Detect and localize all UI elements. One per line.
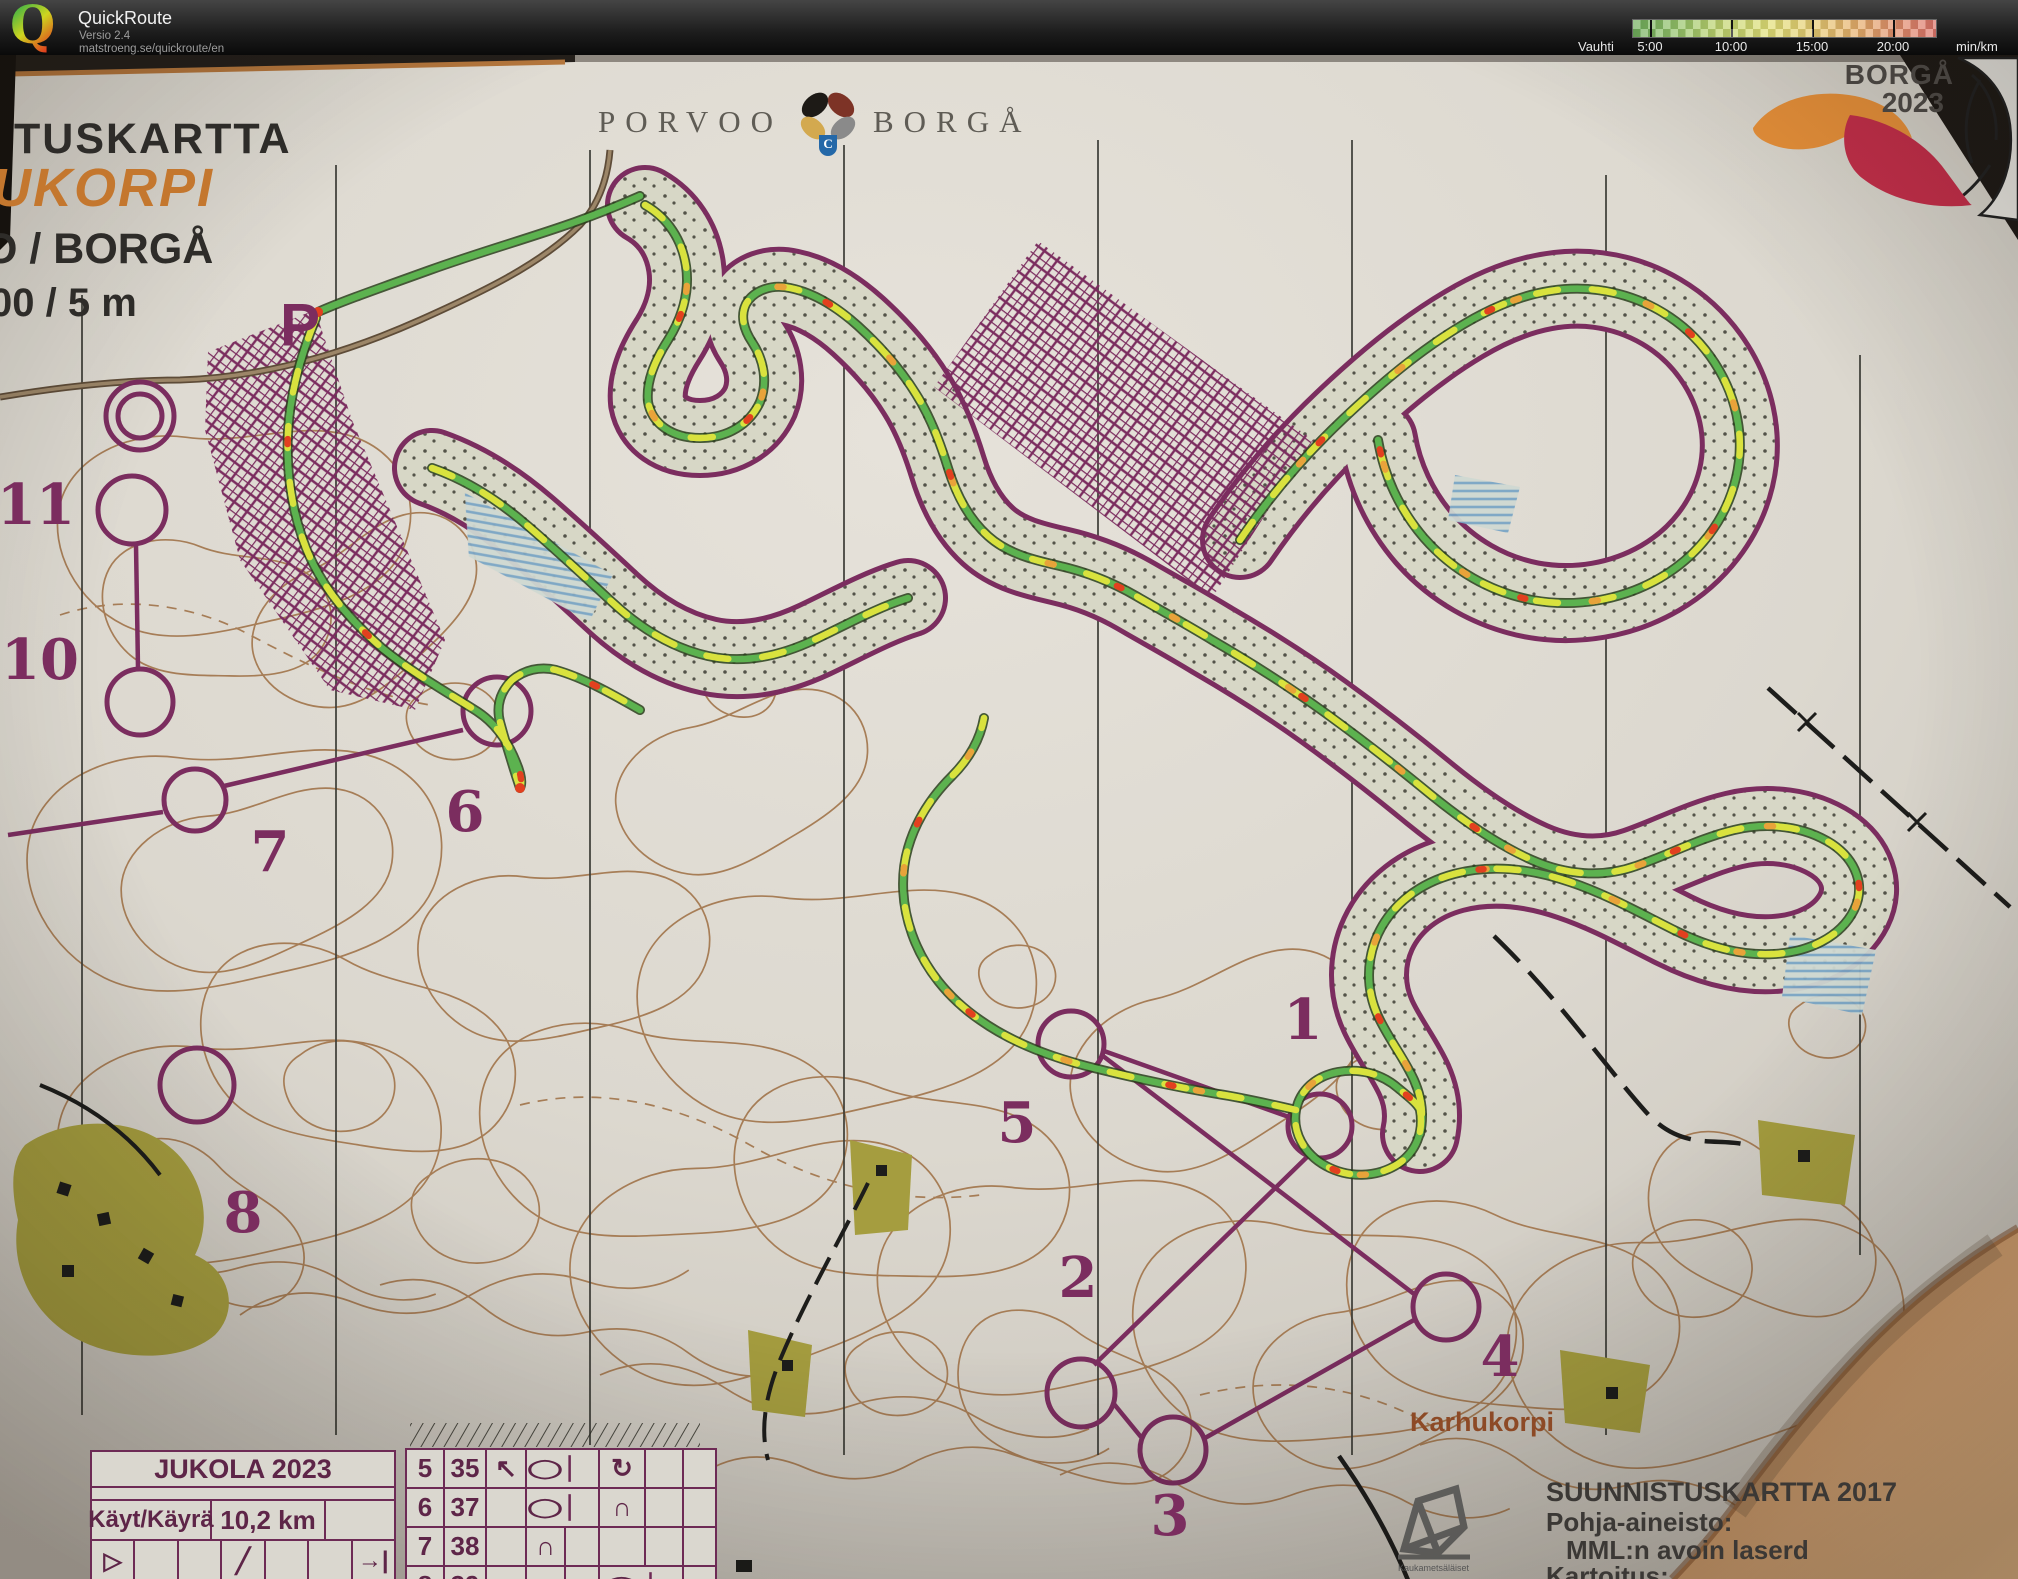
pace-tick-label: 20:00 (1877, 39, 1910, 54)
start-p-label: P (280, 291, 320, 360)
pace-gradient-bar (1632, 19, 1937, 38)
porvoo-petal-icon: C (795, 87, 861, 157)
course-info-sheet: JUKOLA 2023 Käyt/Käyrä 10,2 km ▷ ╱ →| (90, 1450, 396, 1579)
course-length-value: 10,2 km (212, 1501, 326, 1539)
pace-tick (1650, 20, 1652, 37)
orienteering-map-graphic (0, 55, 2018, 1579)
pace-tick (1893, 20, 1895, 37)
quickroute-logo-icon: Q (10, 0, 55, 54)
app-url: matstroeng.se/quickroute/en (79, 43, 224, 55)
event-logo-line2: 2023 (1882, 87, 1944, 119)
app-version: Versio 2.4 (79, 30, 130, 42)
control-label-8: 8 (224, 1180, 263, 1246)
course-sheet-spacer (92, 1488, 394, 1501)
map-title-line2: UKORPI (0, 157, 214, 219)
place-label: Karhukorpi (1410, 1407, 1554, 1438)
photo-artifacts (0, 55, 2018, 1579)
map-title-line3: O / BORGÅ (0, 225, 213, 274)
course-symbols-row: ▷ ╱ →| (92, 1541, 394, 1579)
control-label-6: 6 (446, 779, 485, 845)
credits-line2: Pohja-aineisto: (1546, 1507, 1732, 1538)
control-label-5: 5 (998, 1090, 1037, 1156)
description-row: 7 38 ∩ (407, 1528, 715, 1567)
pace-legend-label: Vauhti (1578, 39, 1614, 54)
control-label-11: 11 (0, 472, 75, 538)
pace-tick (1812, 20, 1814, 37)
credits-line4: Kartoitus: (1546, 1561, 1669, 1579)
control-description-sheet: 5 35 ↖ ◯ ↻ 6 37 ◯ ∩ 7 38 ∩ (405, 1448, 717, 1579)
map-title-line4: 00 / 5 m (0, 281, 137, 326)
control-label-2: 2 (1059, 1245, 1098, 1311)
pace-tick-label: 5:00 (1637, 39, 1662, 54)
pace-tick-label: 15:00 (1796, 39, 1829, 54)
description-row: 6 37 ◯ ∩ (407, 1489, 715, 1528)
map-canvas[interactable]: TUSKARTTA UKORPI O / BORGÅ 00 / 5 m PORV… (0, 55, 2018, 1579)
porvoo-borga-logo: PORVOO C BORGÅ (598, 87, 1032, 157)
control-label-4: 4 (1481, 1324, 1520, 1390)
pace-unit-label: min/km (1956, 39, 1998, 54)
description-row: 5 35 ↖ ◯ ↻ (407, 1450, 715, 1489)
app-title: QuickRoute (78, 8, 172, 29)
quickroute-window: Q QuickRoute Versio 2.4 matstroeng.se/qu… (0, 0, 2018, 1579)
svg-text:C: C (823, 136, 832, 151)
pace-tick (1731, 20, 1733, 37)
control-label-1: 1 (1284, 987, 1323, 1053)
description-row: 8 39 ● ◯ (407, 1567, 715, 1579)
control-label-7: 7 (251, 819, 290, 885)
credits-logo-caption: Kaukametsäläiset (1398, 1563, 1469, 1573)
porvoo-logo-text: PORVOO (598, 104, 783, 140)
course-title: JUKOLA 2023 (92, 1452, 394, 1488)
credits-line1: SUUNNISTUSKARTTA 2017 (1546, 1477, 1897, 1508)
control-label-3: 3 (1151, 1483, 1190, 1549)
control-label-10: 10 (1, 627, 79, 693)
pace-tick-label: 10:00 (1715, 39, 1748, 54)
course-length-label: Käyt/Käyrä (92, 1501, 212, 1539)
app-titlebar: Q QuickRoute Versio 2.4 matstroeng.se/qu… (0, 0, 2018, 55)
borga-logo-text: BORGÅ (873, 104, 1032, 140)
